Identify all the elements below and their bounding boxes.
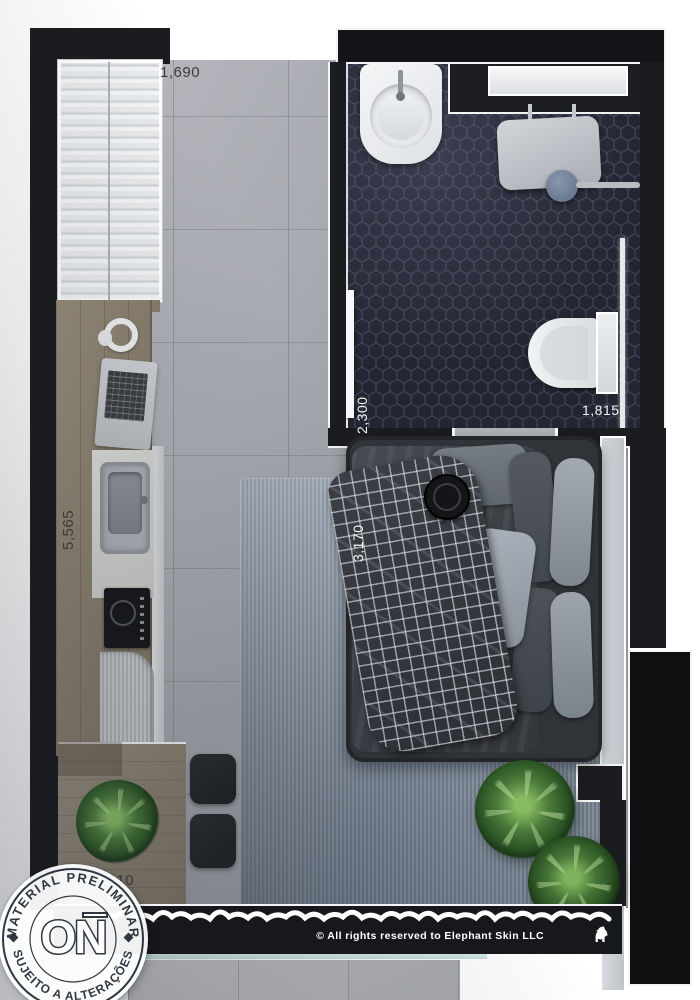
wall-bathroom-right bbox=[640, 62, 666, 430]
window-mullion bbox=[108, 62, 110, 300]
pillow bbox=[549, 457, 596, 587]
dimension-bathroom-width: 1,815 bbox=[582, 402, 620, 418]
stool bbox=[190, 754, 236, 804]
hat-brim bbox=[433, 483, 461, 511]
dimension-bathroom-depth: 2,300 bbox=[354, 352, 370, 434]
dimension-window: 1,690 bbox=[160, 64, 200, 81]
cooktop-burner bbox=[110, 600, 136, 626]
stool bbox=[190, 814, 236, 868]
table-shadow bbox=[58, 742, 122, 776]
sink-faucet-base bbox=[396, 92, 405, 101]
laptop-keyboard bbox=[104, 370, 148, 421]
headphones-pad bbox=[98, 330, 112, 346]
toilet-tank bbox=[596, 312, 618, 394]
wall-bathroom-top bbox=[336, 28, 666, 64]
stamp-logo-macron bbox=[82, 912, 108, 918]
wall-right-column bbox=[628, 650, 692, 986]
elephant-logo-icon bbox=[592, 925, 610, 945]
bathroom-door bbox=[346, 290, 354, 418]
pillow bbox=[550, 591, 594, 718]
wall-right bbox=[630, 430, 666, 648]
shower-valve bbox=[546, 170, 578, 202]
dimension-kitchen: 5,565 bbox=[60, 458, 77, 550]
curtain-squiggle bbox=[94, 906, 614, 926]
dimension-bed: 3,170 bbox=[350, 476, 366, 562]
table-plant bbox=[76, 780, 160, 864]
kitchen-faucet bbox=[140, 496, 148, 504]
wall-step bbox=[576, 764, 624, 802]
refrigerator bbox=[100, 652, 154, 756]
preliminary-stamp: MATERIAL PRELIMINAR SUJEITO A ALTERAÇÕES… bbox=[0, 864, 148, 1000]
window-blinds bbox=[58, 60, 162, 302]
kitchen-sink-basin bbox=[108, 472, 142, 534]
toilet-seat bbox=[540, 326, 588, 380]
floor-plan: © All rights reserved to Elephant Skin L… bbox=[0, 0, 700, 1000]
cooktop-controls bbox=[140, 596, 144, 640]
shower-grab-bar bbox=[576, 182, 640, 188]
wall-bathroom-left bbox=[328, 62, 346, 430]
shower-glass-panel bbox=[620, 238, 625, 430]
balcony-floor bbox=[128, 960, 460, 1000]
shower-shelf bbox=[488, 66, 628, 96]
